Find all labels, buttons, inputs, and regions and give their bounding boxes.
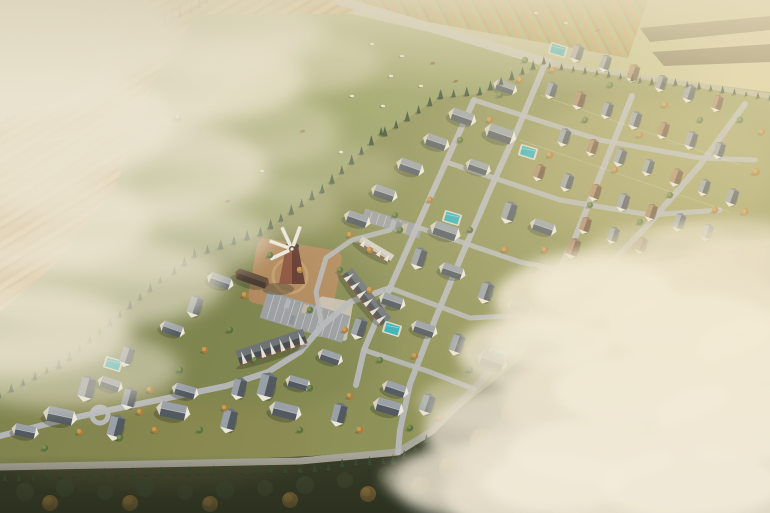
warm-grade bbox=[0, 0, 770, 513]
scene-svg bbox=[0, 0, 770, 513]
aerial-render-canvas bbox=[0, 0, 770, 513]
atmosphere-overlays bbox=[0, 0, 770, 513]
